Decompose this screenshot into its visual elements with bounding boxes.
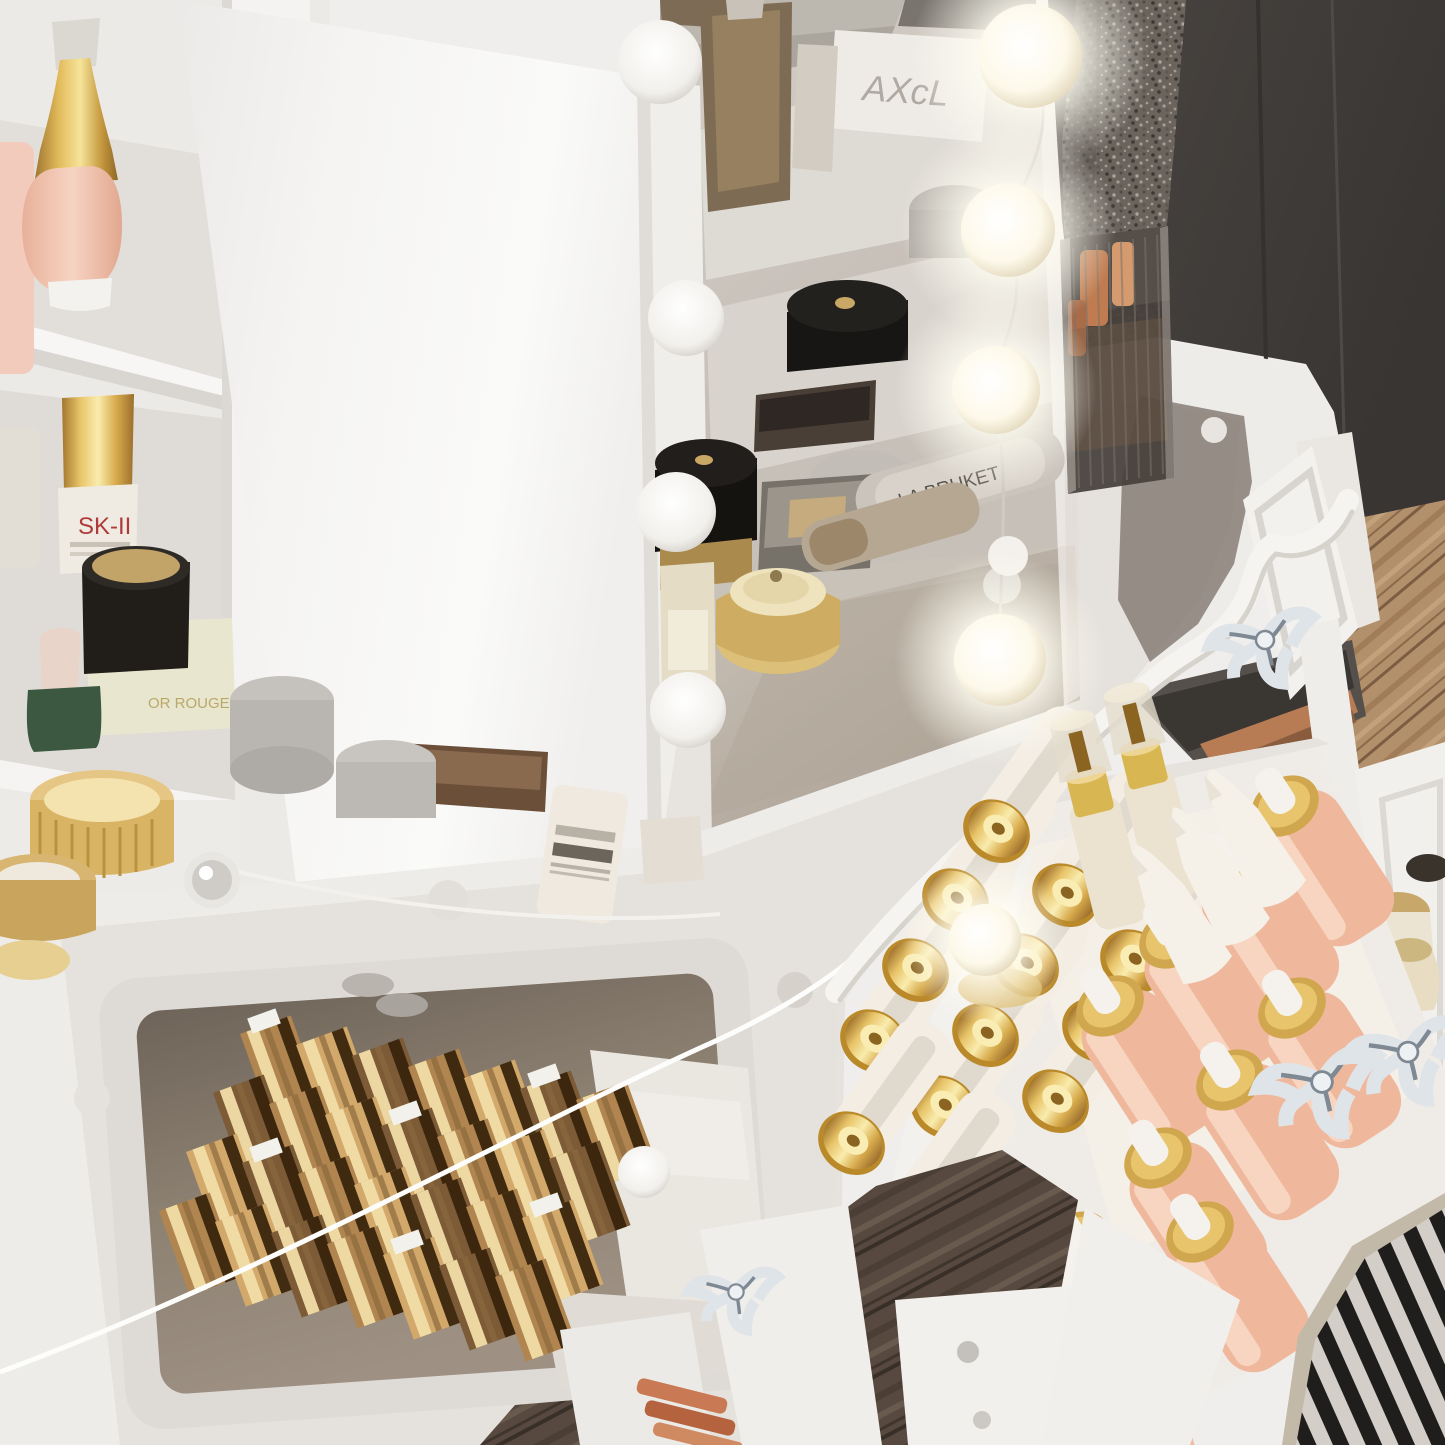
svg-text:SK-II: SK-II [78,513,131,540]
svg-text:OR ROUGE: OR ROUGE [148,695,230,712]
